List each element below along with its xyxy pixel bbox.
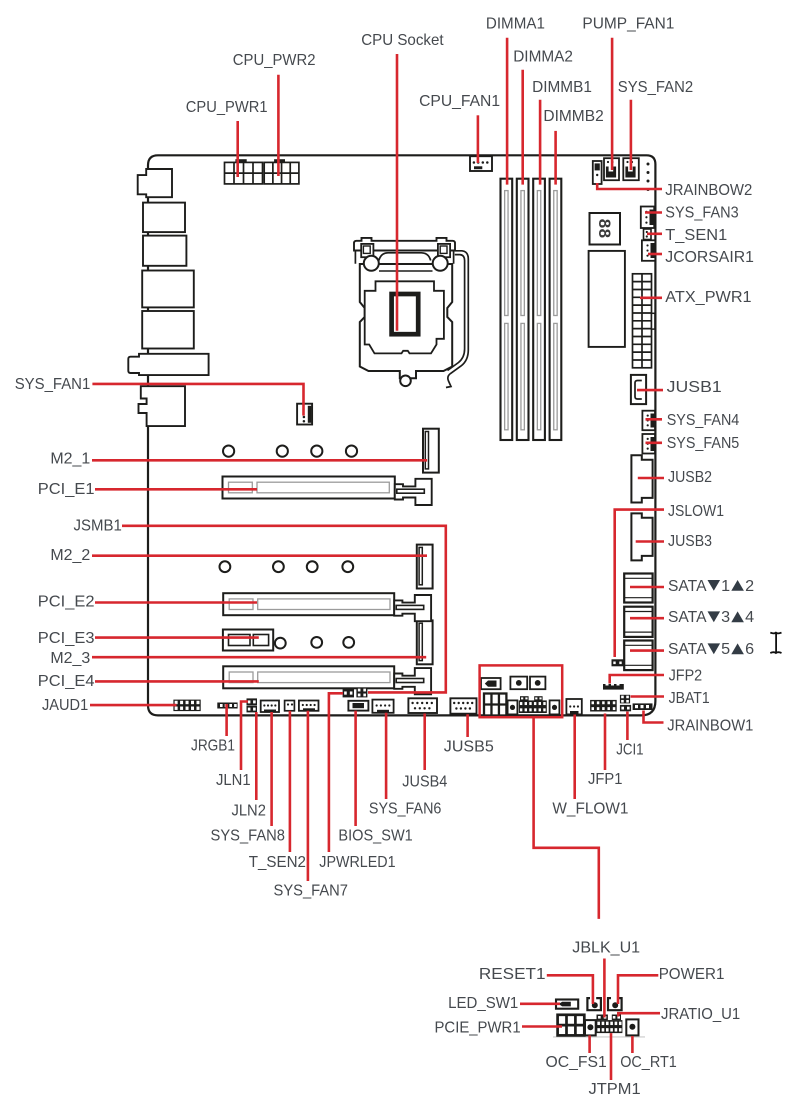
svg-text:SYS_FAN4: SYS_FAN4 — [667, 412, 740, 429]
svg-text:CPU_PWR1: CPU_PWR1 — [186, 99, 268, 116]
svg-text:JRAINBOW1: JRAINBOW1 — [667, 718, 753, 735]
svg-text:CPU_FAN1: CPU_FAN1 — [419, 93, 500, 110]
svg-text:DIMMB2: DIMMB2 — [543, 108, 603, 125]
svg-text:JPWRLED1: JPWRLED1 — [319, 854, 395, 871]
svg-text:RESET1: RESET1 — [479, 966, 546, 983]
svg-text:3: 3 — [721, 609, 730, 626]
svg-text:PCI_E4: PCI_E4 — [38, 673, 95, 690]
svg-text:JSMB1: JSMB1 — [74, 518, 122, 535]
svg-text:OC_RT1: OC_RT1 — [620, 1054, 677, 1071]
svg-text:OC_FS1: OC_FS1 — [546, 1054, 607, 1071]
svg-text:DIMMA1: DIMMA1 — [486, 16, 545, 33]
svg-text:6: 6 — [745, 641, 754, 658]
svg-text:W_FLOW1: W_FLOW1 — [552, 801, 628, 818]
svg-text:JUSB5: JUSB5 — [444, 738, 494, 755]
svg-text:JCI1: JCI1 — [616, 741, 644, 758]
svg-text:JUSB4: JUSB4 — [402, 774, 447, 791]
svg-text:JFP2: JFP2 — [669, 668, 703, 685]
svg-text:SATA: SATA — [668, 641, 707, 658]
svg-text:1: 1 — [721, 578, 730, 595]
svg-text:POWER1: POWER1 — [659, 966, 725, 983]
svg-text:LED_SW1: LED_SW1 — [448, 995, 518, 1012]
svg-text:T_SEN1: T_SEN1 — [665, 227, 727, 244]
svg-text:PCI_E1: PCI_E1 — [38, 481, 95, 498]
svg-text:CPU_PWR2: CPU_PWR2 — [233, 52, 316, 69]
svg-text:SYS_FAN6: SYS_FAN6 — [369, 801, 442, 818]
svg-text:PCIE_PWR1: PCIE_PWR1 — [435, 1020, 521, 1037]
svg-text:SATA: SATA — [668, 609, 707, 626]
svg-text:JAUD1: JAUD1 — [42, 697, 88, 714]
svg-text:JRAINBOW2: JRAINBOW2 — [665, 182, 752, 199]
svg-text:CPU Socket: CPU Socket — [361, 32, 444, 49]
svg-text:SYS_FAN1: SYS_FAN1 — [15, 376, 91, 393]
svg-text:SYS_FAN3: SYS_FAN3 — [665, 205, 739, 222]
svg-text:M2_3: M2_3 — [50, 650, 90, 667]
svg-text:JLN2: JLN2 — [232, 803, 266, 820]
svg-text:SYS_FAN2: SYS_FAN2 — [618, 79, 693, 96]
svg-text:88: 88 — [595, 219, 614, 239]
svg-text:JTPM1: JTPM1 — [589, 1081, 641, 1098]
svg-text:JBAT1: JBAT1 — [669, 690, 710, 707]
svg-text:M2_2: M2_2 — [50, 547, 90, 564]
svg-text:JRATIO_U1: JRATIO_U1 — [661, 1006, 740, 1023]
svg-text:4: 4 — [745, 609, 754, 626]
svg-text:JUSB2: JUSB2 — [668, 469, 712, 486]
svg-text:PCI_E2: PCI_E2 — [38, 593, 95, 610]
svg-text:JCORSAIR1: JCORSAIR1 — [665, 249, 754, 266]
svg-text:M2_1: M2_1 — [50, 451, 90, 468]
svg-text:BIOS_SW1: BIOS_SW1 — [338, 827, 413, 844]
svg-text:SYS_FAN8: SYS_FAN8 — [211, 827, 286, 844]
svg-text:2: 2 — [745, 578, 754, 595]
svg-text:JSLOW1: JSLOW1 — [668, 503, 724, 520]
svg-text:JRGB1: JRGB1 — [191, 738, 235, 755]
svg-text:DIMMB1: DIMMB1 — [532, 79, 592, 96]
svg-text:JLN1: JLN1 — [216, 772, 251, 789]
svg-text:JBLK_U1: JBLK_U1 — [572, 939, 640, 956]
svg-text:SYS_FAN5: SYS_FAN5 — [667, 435, 740, 452]
svg-text:SATA: SATA — [668, 578, 707, 595]
svg-text:JUSB1: JUSB1 — [667, 379, 722, 396]
svg-text:JFP1: JFP1 — [588, 771, 623, 788]
svg-text:JUSB3: JUSB3 — [668, 533, 712, 550]
svg-text:ATX_PWR1: ATX_PWR1 — [665, 289, 752, 306]
svg-text:DIMMA2: DIMMA2 — [513, 48, 573, 65]
svg-text:PUMP_FAN1: PUMP_FAN1 — [582, 16, 674, 33]
svg-text:SYS_FAN7: SYS_FAN7 — [274, 883, 349, 900]
svg-text:PCI_E3: PCI_E3 — [38, 630, 95, 647]
svg-text:T_SEN2: T_SEN2 — [249, 854, 306, 871]
svg-text:5: 5 — [721, 641, 730, 658]
